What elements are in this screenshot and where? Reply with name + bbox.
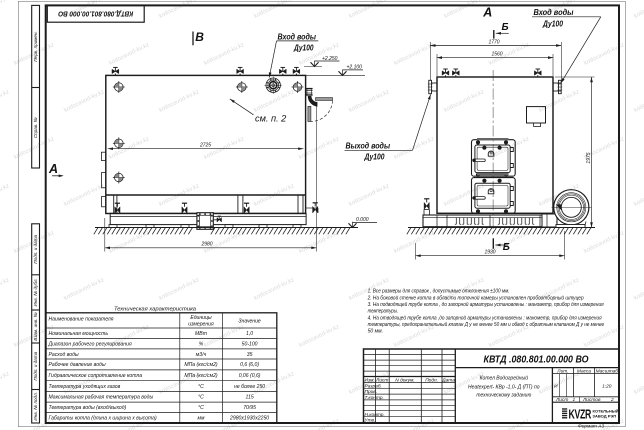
svg-text:1975: 1975 — [586, 152, 592, 163]
svg-text:Масштаб: Масштаб — [596, 368, 619, 374]
svg-text:Ду100: Ду100 — [293, 42, 313, 52]
svg-text:Подп. и дата: Подп. и дата — [33, 234, 38, 263]
svg-text:Б: Б — [502, 22, 509, 33]
svg-text:Номинальная мощность: Номинальная мощность — [49, 331, 109, 337]
svg-text:МВт: МВт — [195, 331, 207, 337]
svg-text:температуры.: температуры. — [368, 309, 399, 315]
svg-text:КВТД.080.801.00.000 ВО: КВТД.080.801.00.000 ВО — [58, 9, 133, 18]
svg-text:техническому заданию: техническому заданию — [476, 392, 531, 398]
svg-text:Инв. № подл.: Инв. № подл. — [33, 392, 38, 421]
svg-text:Значение: Значение — [238, 319, 261, 325]
svg-text:Вход воды: Вход воды — [534, 7, 575, 17]
svg-text:1770: 1770 — [488, 40, 499, 46]
svg-text:Температура воды (вход/выход): Температура воды (вход/выход) — [49, 405, 127, 411]
svg-text:Лит.: Лит. — [556, 368, 568, 374]
svg-text:°С: °С — [198, 384, 204, 390]
svg-text:А: А — [48, 162, 58, 176]
svg-text:35: 35 — [247, 352, 253, 358]
svg-text:Формат А3: Формат А3 — [578, 423, 605, 429]
svg-text:Инв. № дубл.: Инв. № дубл. — [33, 278, 38, 306]
svg-text:м3/ч: м3/ч — [196, 352, 207, 358]
svg-text:°С: °С — [198, 395, 204, 401]
svg-text:Расход воды: Расход воды — [49, 352, 79, 358]
svg-text:Вход воды: Вход воды — [278, 31, 317, 41]
svg-text:1:20: 1:20 — [602, 384, 612, 390]
svg-text:температуры, предохранительный: температуры, предохранительный клапан Д … — [368, 321, 605, 328]
svg-text:2980: 2980 — [200, 242, 212, 248]
svg-text:Подп. и дата: Подп. и дата — [33, 351, 38, 380]
svg-text:Диапазон рабочего регулировани: Диапазон рабочего регулирования — [48, 341, 132, 347]
svg-text:Т.контр.: Т.контр. — [365, 395, 384, 401]
svg-text:1,0: 1,0 — [246, 331, 253, 337]
svg-text:МПа (кгс/см2): МПа (кгс/см2) — [184, 362, 218, 368]
svg-text:Дата: Дата — [441, 377, 455, 383]
svg-text:Выход воды: Выход воды — [346, 140, 391, 150]
svg-text:Наименование показателя: Наименование показателя — [49, 317, 114, 323]
svg-text:Габариты котла (длина х ширина: Габариты котла (длина х ширина х высота) — [49, 416, 157, 422]
svg-text:2: 2 — [610, 397, 614, 403]
svg-text:2980х1930х2250: 2980х1930х2250 — [229, 416, 269, 422]
svg-text:Разраб.: Разраб. — [365, 383, 382, 389]
svg-text:Б: Б — [503, 242, 510, 253]
svg-text:1930: 1930 — [484, 250, 495, 256]
svg-text:И: И — [554, 384, 558, 390]
svg-text:А: А — [482, 6, 492, 20]
svg-text:Котел Водогрейный: Котел Водогрейный — [480, 374, 529, 381]
svg-text:1. Все размеры для справок , д: 1. Все размеры для справок , допустимые … — [368, 289, 510, 295]
svg-text:Лист: Лист — [555, 397, 568, 403]
svg-text:+2.250: +2.250 — [322, 56, 338, 62]
svg-text:В: В — [195, 30, 204, 44]
svg-text:+2.100: +2.100 — [347, 65, 363, 71]
svg-text:4. На отводящей трубе котла ,д: 4. На отводящей трубе котла ,до запорной… — [368, 314, 602, 321]
svg-text:1560: 1560 — [491, 52, 502, 58]
svg-text:Взам. инв. №: Взам. инв. № — [33, 312, 38, 340]
svg-text:Пров.: Пров. — [365, 389, 378, 395]
svg-text:115: 115 — [246, 395, 254, 401]
svg-text:мм: мм — [198, 416, 205, 422]
svg-text:КВТД .080.801.00.000 ВО: КВТД .080.801.00.000 ВО — [484, 355, 589, 366]
svg-text:70/95: 70/95 — [243, 405, 256, 411]
svg-text:Масса: Масса — [577, 368, 592, 374]
svg-text:измерения: измерения — [188, 322, 214, 328]
svg-text:Гидравлическое сопротивление к: Гидравлическое сопротивление котла — [49, 373, 143, 379]
svg-text:ЗАВОД РЭП: ЗАВОД РЭП — [593, 414, 617, 419]
svg-text:Heatexpert- КВр -1,0- Д (ПТ): Heatexpert- КВр -1,0- Д (ПТ) по — [468, 384, 540, 390]
svg-text:2. На боковой стенке котла в о: 2. На боковой стенке котла в области топ… — [367, 294, 584, 301]
svg-text:3. На подводящей трубе котла ,: 3. На подводящей трубе котла , до запорн… — [368, 301, 604, 308]
svg-text:Подп.: Подп. — [425, 377, 438, 383]
svg-text:KVZR: KVZR — [569, 406, 592, 421]
svg-text:2725: 2725 — [199, 143, 211, 149]
svg-text:Листов: Листов — [582, 397, 601, 403]
svg-text:0,6 (6,0): 0,6 (6,0) — [240, 362, 259, 368]
svg-text:1: 1 — [573, 397, 576, 403]
svg-text:50-100: 50-100 — [242, 341, 258, 347]
svg-text:не более 250: не более 250 — [234, 384, 265, 390]
svg-text:Перв. примен.: Перв. примен. — [33, 31, 38, 62]
svg-text:Н.контр.: Н.контр. — [365, 412, 385, 418]
svg-text:Утв.: Утв. — [365, 418, 376, 424]
svg-text:см. п. 2: см. п. 2 — [255, 113, 286, 123]
svg-text:Ду100: Ду100 — [542, 18, 563, 28]
svg-text:Рабочее давление воды: Рабочее давление воды — [49, 362, 106, 368]
svg-text:0,06 (0,6): 0,06 (0,6) — [239, 373, 261, 379]
svg-text:Единицы: Единицы — [190, 315, 212, 321]
svg-text:Максимальная рабочая температу: Максимальная рабочая температура воды — [49, 395, 154, 401]
svg-text:Ду100: Ду100 — [364, 151, 385, 161]
svg-text:%: % — [199, 341, 204, 347]
svg-text:Техническая характеристика: Техническая характеристика — [114, 306, 197, 312]
svg-text:0.000: 0.000 — [356, 217, 369, 223]
svg-text:Справ. №: Справ. № — [33, 117, 38, 138]
svg-text:МПа (кгс/см2): МПа (кгс/см2) — [184, 373, 218, 379]
svg-text:50 мм.: 50 мм. — [368, 329, 384, 335]
svg-text:Изм. Лист: Изм. Лист — [365, 377, 389, 383]
svg-text:N докум.: N докум. — [395, 377, 414, 383]
svg-text:Температура уходящих газов: Температура уходящих газов — [49, 384, 121, 390]
svg-text:°С: °С — [198, 405, 204, 411]
